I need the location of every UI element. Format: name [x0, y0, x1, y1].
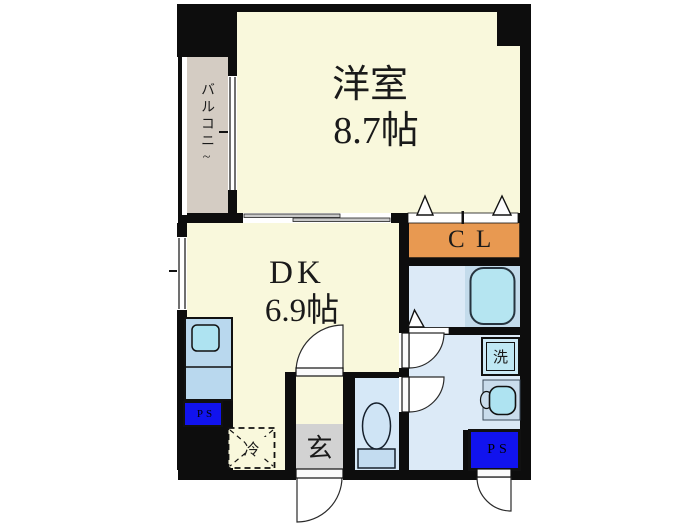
floorplan-svg [0, 0, 700, 525]
toilet-tank [358, 449, 395, 468]
wall-closet-bottom [399, 258, 531, 266]
closet-door-tick [462, 211, 465, 224]
wall-right [520, 4, 531, 480]
basin-bowl [490, 387, 516, 415]
window-dk-left [169, 237, 187, 310]
pipe-space-kitchen-box [184, 402, 222, 426]
door-leaf [296, 469, 343, 478]
refrigerator-label-plate [245, 437, 268, 458]
entrance-floor [296, 424, 343, 470]
wall-topleft-block [177, 4, 237, 57]
door-swing-arc [297, 477, 342, 522]
balcony-railing-gap [182, 57, 187, 215]
bathtub [471, 268, 515, 324]
wash-basin [481, 380, 521, 420]
door-entrance [296, 469, 343, 522]
wall-corridor-right [343, 372, 355, 470]
door-leaf [402, 377, 409, 412]
door-pipe-space [477, 469, 511, 511]
sliding-panel [244, 214, 340, 218]
balcony-railing [178, 55, 182, 218]
kitchen-sink [192, 325, 219, 351]
door-leaf [477, 469, 511, 477]
pipe-space-utility-box [470, 431, 520, 470]
sliding-door [243, 213, 391, 223]
western-room-floor [237, 12, 520, 213]
closet-box [408, 222, 520, 258]
window-glass [228, 76, 237, 190]
door-swing-arc [477, 477, 511, 511]
toilet-bowl [363, 403, 391, 449]
refrigerator-space [229, 428, 275, 468]
sliding-panel [293, 218, 390, 222]
door-leaf [402, 333, 409, 368]
washing-machine-pan [482, 338, 519, 375]
wall-topright-notch [497, 12, 520, 46]
wall-corridor-left [285, 372, 296, 470]
floorplan: 洋室 8.7帖 DK 6.9帖 CL バルコニ~ 玄 冷 洗 PS PS [0, 0, 700, 525]
wall-top [233, 4, 531, 12]
washer-inner [487, 343, 515, 371]
kitchen-unit [185, 318, 232, 400]
door-leaf [296, 368, 343, 376]
balcony-floor [187, 57, 228, 215]
